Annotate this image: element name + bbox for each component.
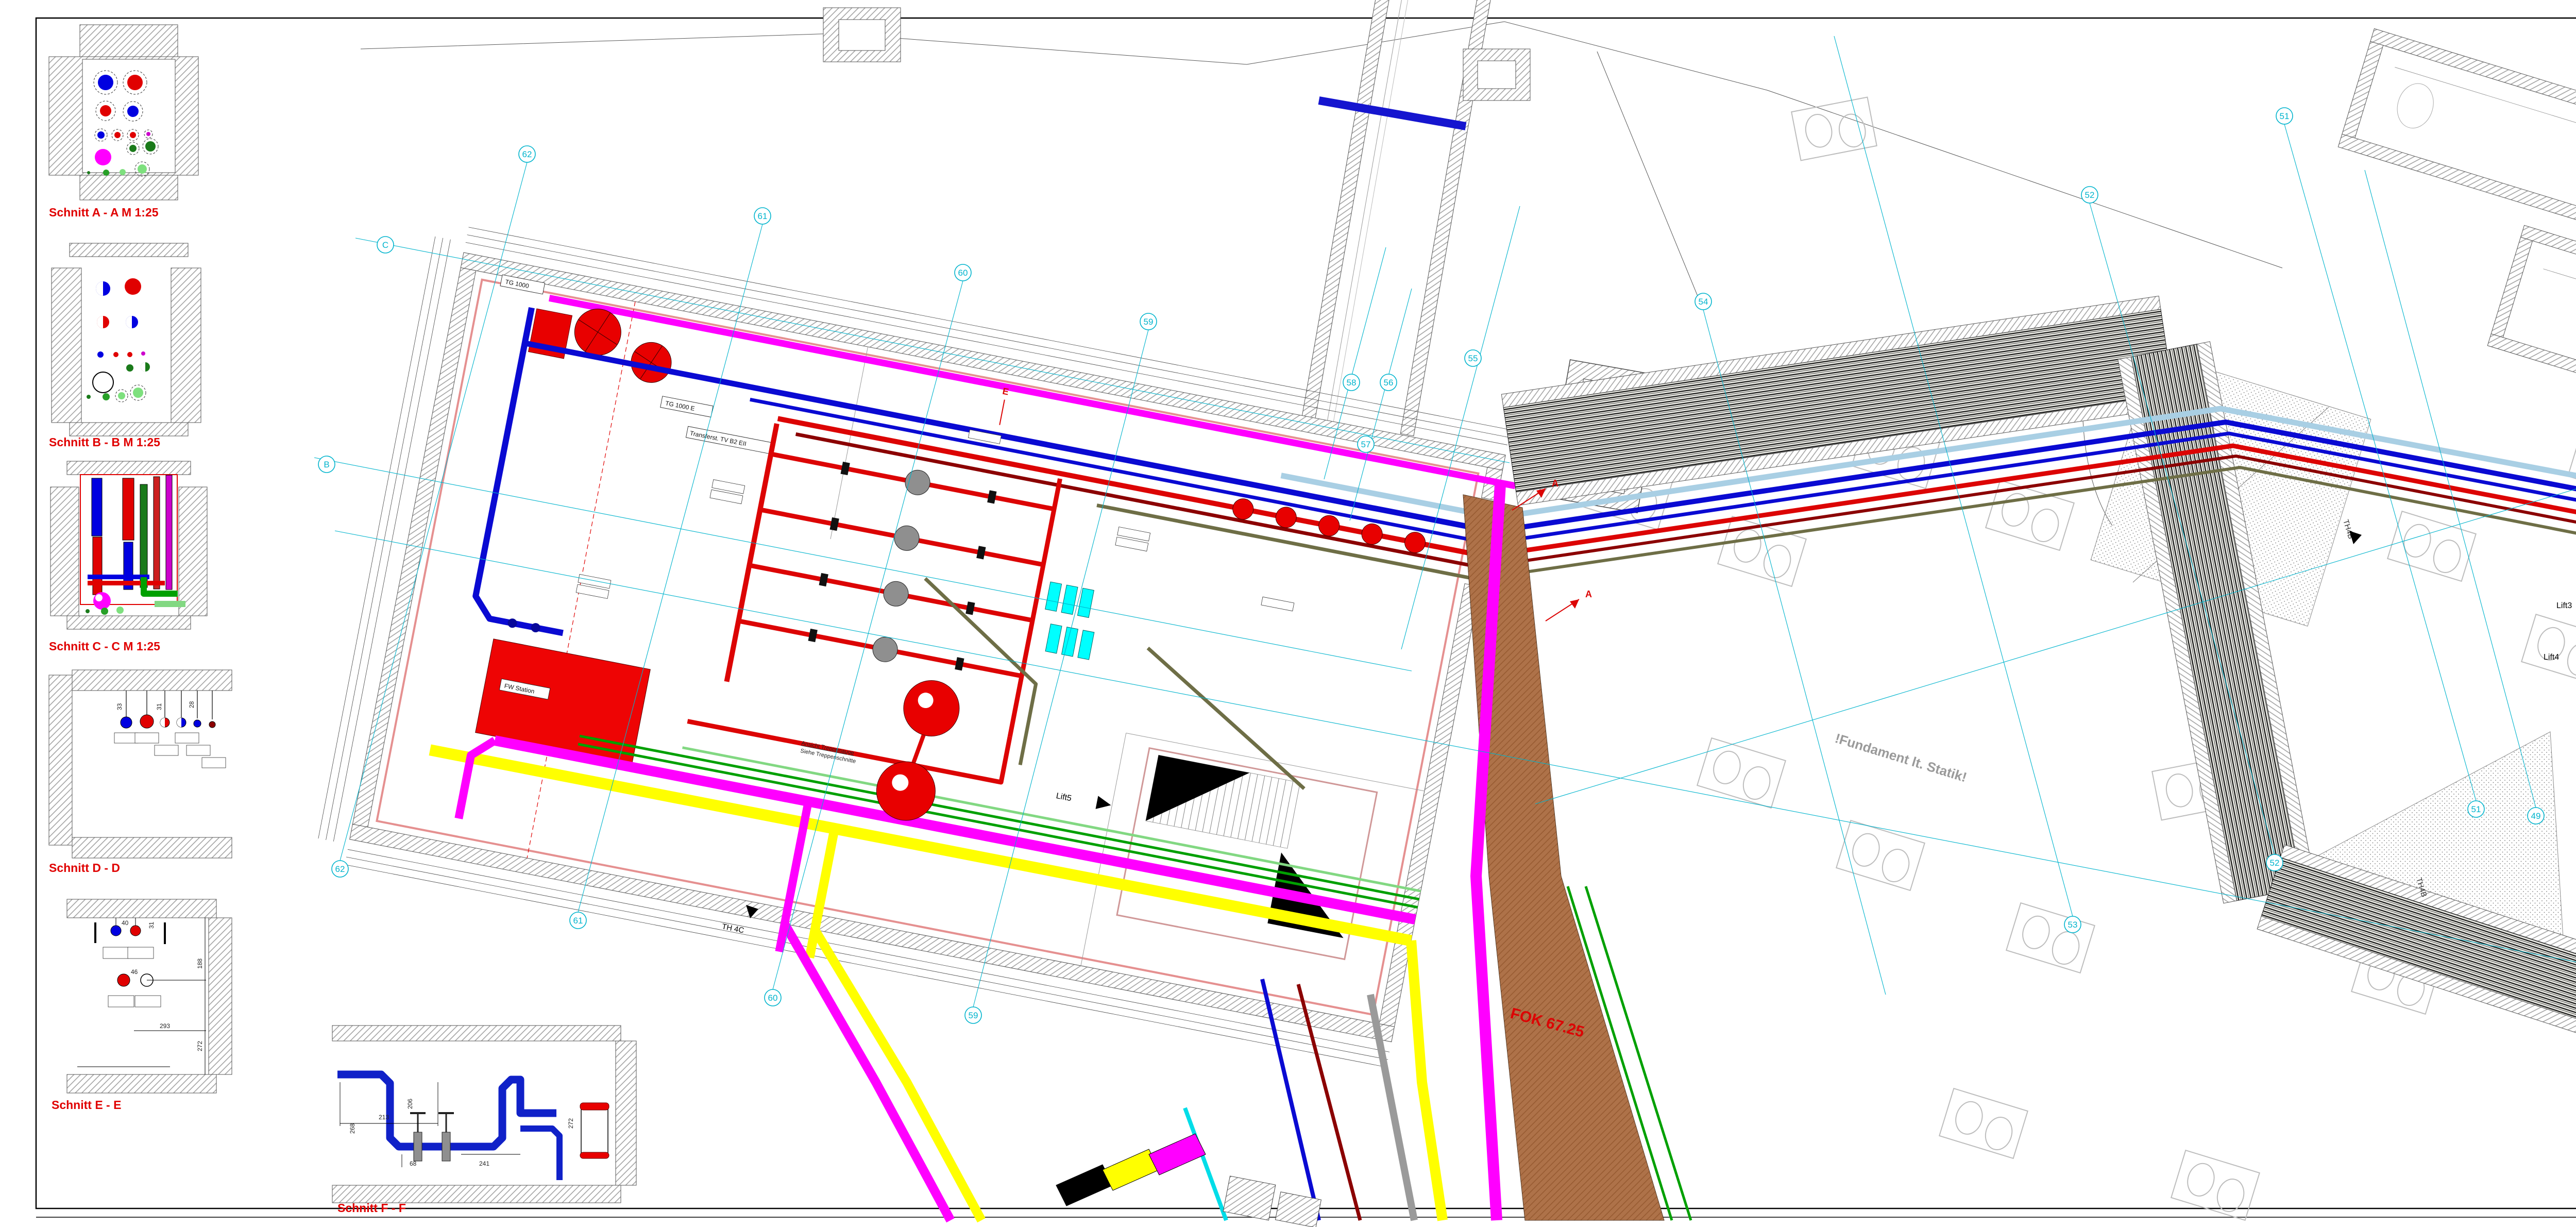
svg-text:46: 46 <box>131 968 138 976</box>
svg-text:33: 33 <box>116 703 123 710</box>
svg-text:56: 56 <box>1384 378 1394 388</box>
section-d: 33 31 28 Schnitt D - D <box>49 670 232 875</box>
svg-text:293: 293 <box>160 1022 170 1030</box>
svg-text:31: 31 <box>156 703 163 710</box>
foundation-pads <box>1584 97 2576 1220</box>
svg-text:59: 59 <box>969 1011 978 1020</box>
tg-tanks <box>527 297 679 386</box>
svg-text:Schnitt B - B M 1:25: Schnitt B - B M 1:25 <box>49 435 160 449</box>
svg-text:272: 272 <box>567 1118 574 1129</box>
svg-text:28: 28 <box>188 701 195 708</box>
svg-text:Schnitt E - E: Schnitt E - E <box>52 1098 121 1112</box>
section-c: Schnitt C - C M 1:25 <box>49 461 207 653</box>
svg-text:188: 188 <box>196 959 204 969</box>
drawing-sheet: TG 1000 TG 1000 E Transferst. TV B2 EII <box>0 0 2576 1227</box>
section-marker-a2: A <box>1546 589 1592 621</box>
svg-text:206: 206 <box>406 1099 414 1109</box>
svg-text:62: 62 <box>335 864 345 874</box>
svg-text:C: C <box>382 240 388 250</box>
svg-text:49: 49 <box>2531 811 2541 821</box>
blue-pipe-stub <box>1319 100 1466 126</box>
svg-text:TH 4C: TH 4C <box>721 922 745 935</box>
svg-text:B: B <box>324 460 329 469</box>
svg-text:31: 31 <box>148 921 155 929</box>
svg-text:60: 60 <box>958 268 968 278</box>
svg-text:272: 272 <box>196 1041 204 1051</box>
storage-tanks <box>872 674 964 827</box>
fundament-note: !Fundament lt. Statik! <box>1833 730 1969 785</box>
svg-text:Schnitt C - C M 1:25: Schnitt C - C M 1:25 <box>49 640 160 653</box>
svg-text:Schnitt D - D: Schnitt D - D <box>49 861 120 875</box>
svg-text:54: 54 <box>1699 297 1708 307</box>
svg-text:Lift4: Lift4 <box>2544 653 2559 662</box>
svg-text:Lift3: Lift3 <box>2556 601 2572 610</box>
svg-text:55: 55 <box>1468 354 1478 363</box>
svg-text:57: 57 <box>1361 440 1371 449</box>
ductbank-seg1 <box>1501 296 2175 505</box>
pump-assembly <box>687 418 1060 782</box>
shaft-top-left <box>823 8 901 62</box>
lift3-marker: Lift3 <box>2556 598 2576 610</box>
svg-text:53: 53 <box>2068 920 2078 930</box>
svg-text:241: 241 <box>479 1160 489 1167</box>
svg-text:51: 51 <box>2280 111 2290 121</box>
svg-text:A: A <box>1585 589 1592 599</box>
svg-text:61: 61 <box>573 916 583 926</box>
svg-text:213: 213 <box>379 1114 389 1121</box>
svg-text:40: 40 <box>122 919 129 927</box>
svg-text:61: 61 <box>758 211 768 221</box>
svg-text:60: 60 <box>768 993 778 1003</box>
section-f: 213 268 206 68 241 272 Schnitt F - F <box>332 1026 636 1215</box>
dampers <box>1056 1134 1206 1206</box>
section-e: 40 31 46 293 188 272 Schnitt E - E <box>52 899 232 1112</box>
svg-text:68: 68 <box>410 1160 417 1167</box>
svg-text:58: 58 <box>1347 378 1357 388</box>
treppe-note: Ansicht Treppenauge Siehe Treppenschnitt… <box>800 740 856 765</box>
svg-text:59: 59 <box>1144 317 1154 327</box>
section-b: Schnitt B - B M 1:25 <box>49 243 201 449</box>
lift4-marker: Lift4 <box>2544 649 2576 662</box>
valves <box>410 1113 454 1161</box>
building-finger4: TG 1000 TG 1000 E Transferst. TV B2 EII <box>314 221 1526 1072</box>
level-tags <box>1037 582 1102 660</box>
svg-text:Schnitt A - A M 1:25: Schnitt A - A M 1:25 <box>49 206 159 219</box>
wing-rooms <box>2295 29 2576 409</box>
svg-text:Schnitt F - F: Schnitt F - F <box>337 1201 406 1215</box>
tank <box>580 1103 609 1158</box>
plan-canvas: TG 1000 TG 1000 E Transferst. TV B2 EII <box>0 0 2576 1227</box>
section-a: Schnitt A - A M 1:25 <box>49 25 198 219</box>
section-marker-e: E <box>1002 386 1010 397</box>
svg-text:52: 52 <box>2085 190 2095 200</box>
svg-text:268: 268 <box>349 1123 356 1134</box>
label-lift5: Lift5 <box>1055 792 1072 803</box>
svg-text:A: A <box>1552 478 1558 489</box>
svg-text:62: 62 <box>522 149 532 159</box>
bottom-shafts <box>1223 1176 1321 1227</box>
shaft-top-mid <box>1463 49 1530 100</box>
svg-text:52: 52 <box>2270 858 2280 868</box>
svg-text:51: 51 <box>2471 804 2481 814</box>
